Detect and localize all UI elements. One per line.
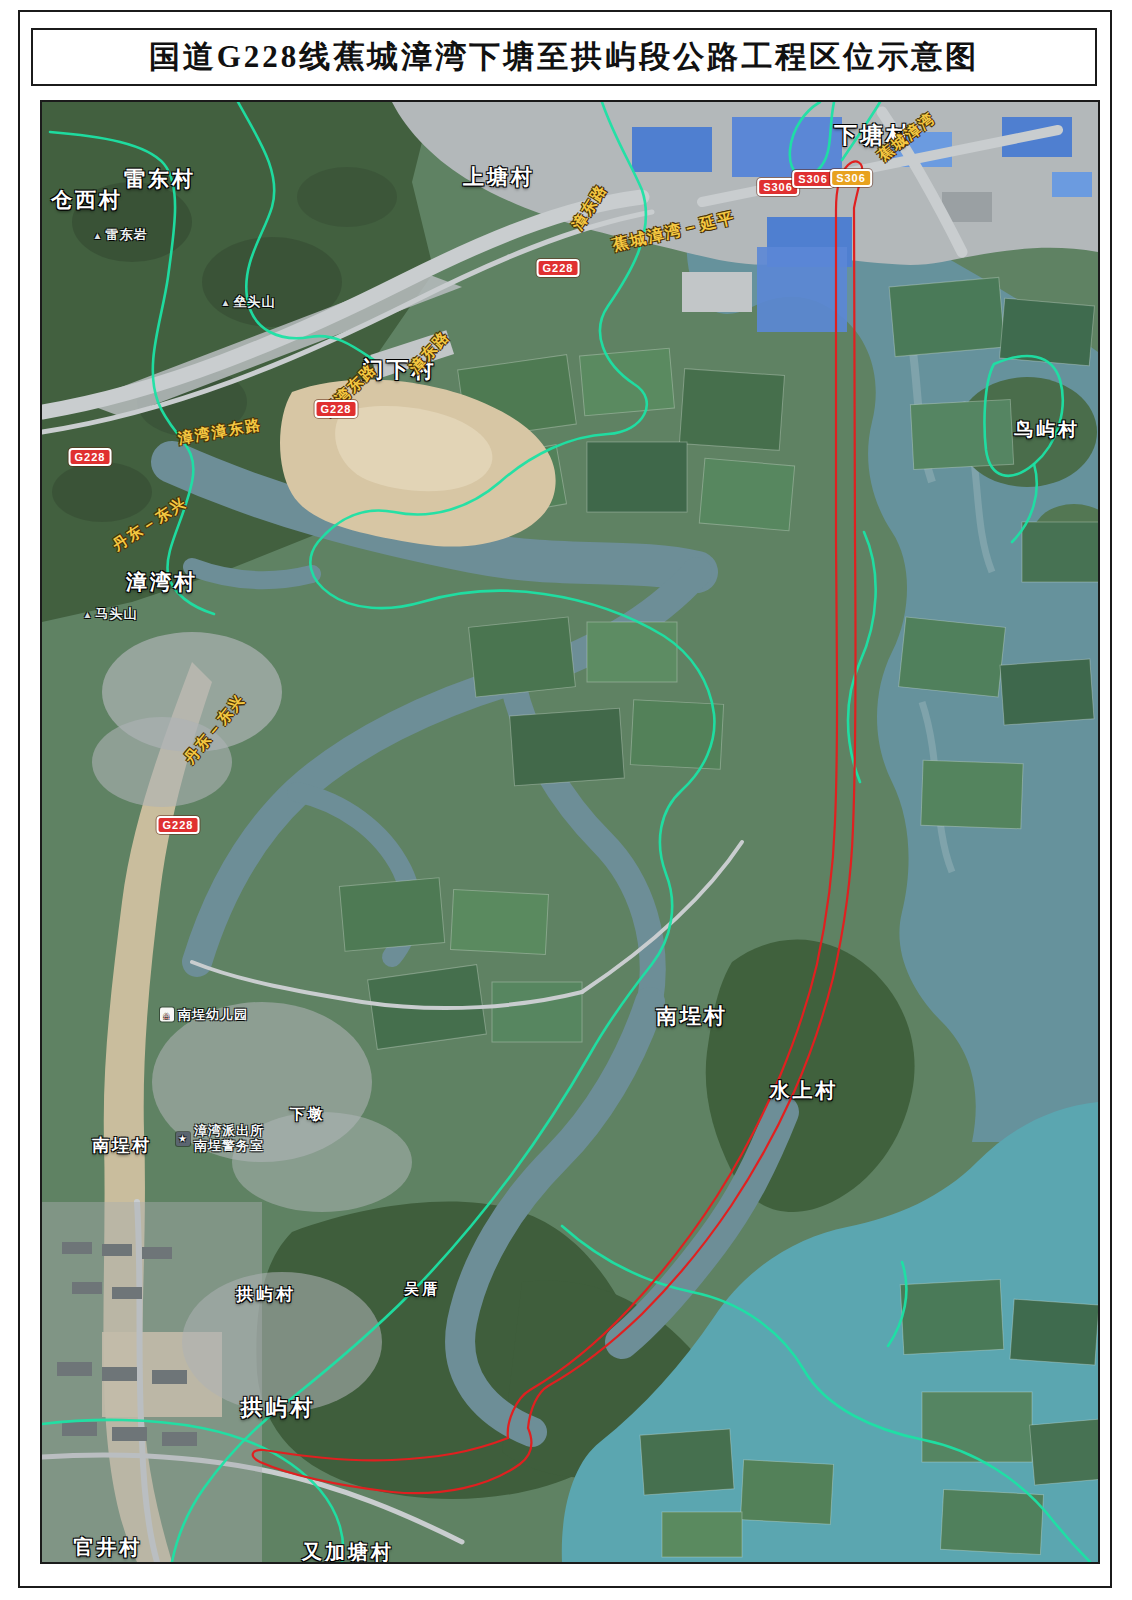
satellite-map [42,102,1098,1562]
title-bar: 国道G228线蕉城漳湾下塘至拱屿段公路工程区位示意图 [31,28,1097,86]
page-title: 国道G228线蕉城漳湾下塘至拱屿段公路工程区位示意图 [149,36,980,78]
drawing-frame: 国道G228线蕉城漳湾下塘至拱屿段公路工程区位示意图 [18,10,1112,1588]
map-container[interactable]: 下塘村雷东村仓西村上塘村门下村漳湾村鸟屿村南埕村水上村南埕村下墩拱屿村吴厝拱屿村… [40,100,1100,1564]
page: 国道G228线蕉城漳湾下塘至拱屿段公路工程区位示意图 [0,0,1132,1600]
